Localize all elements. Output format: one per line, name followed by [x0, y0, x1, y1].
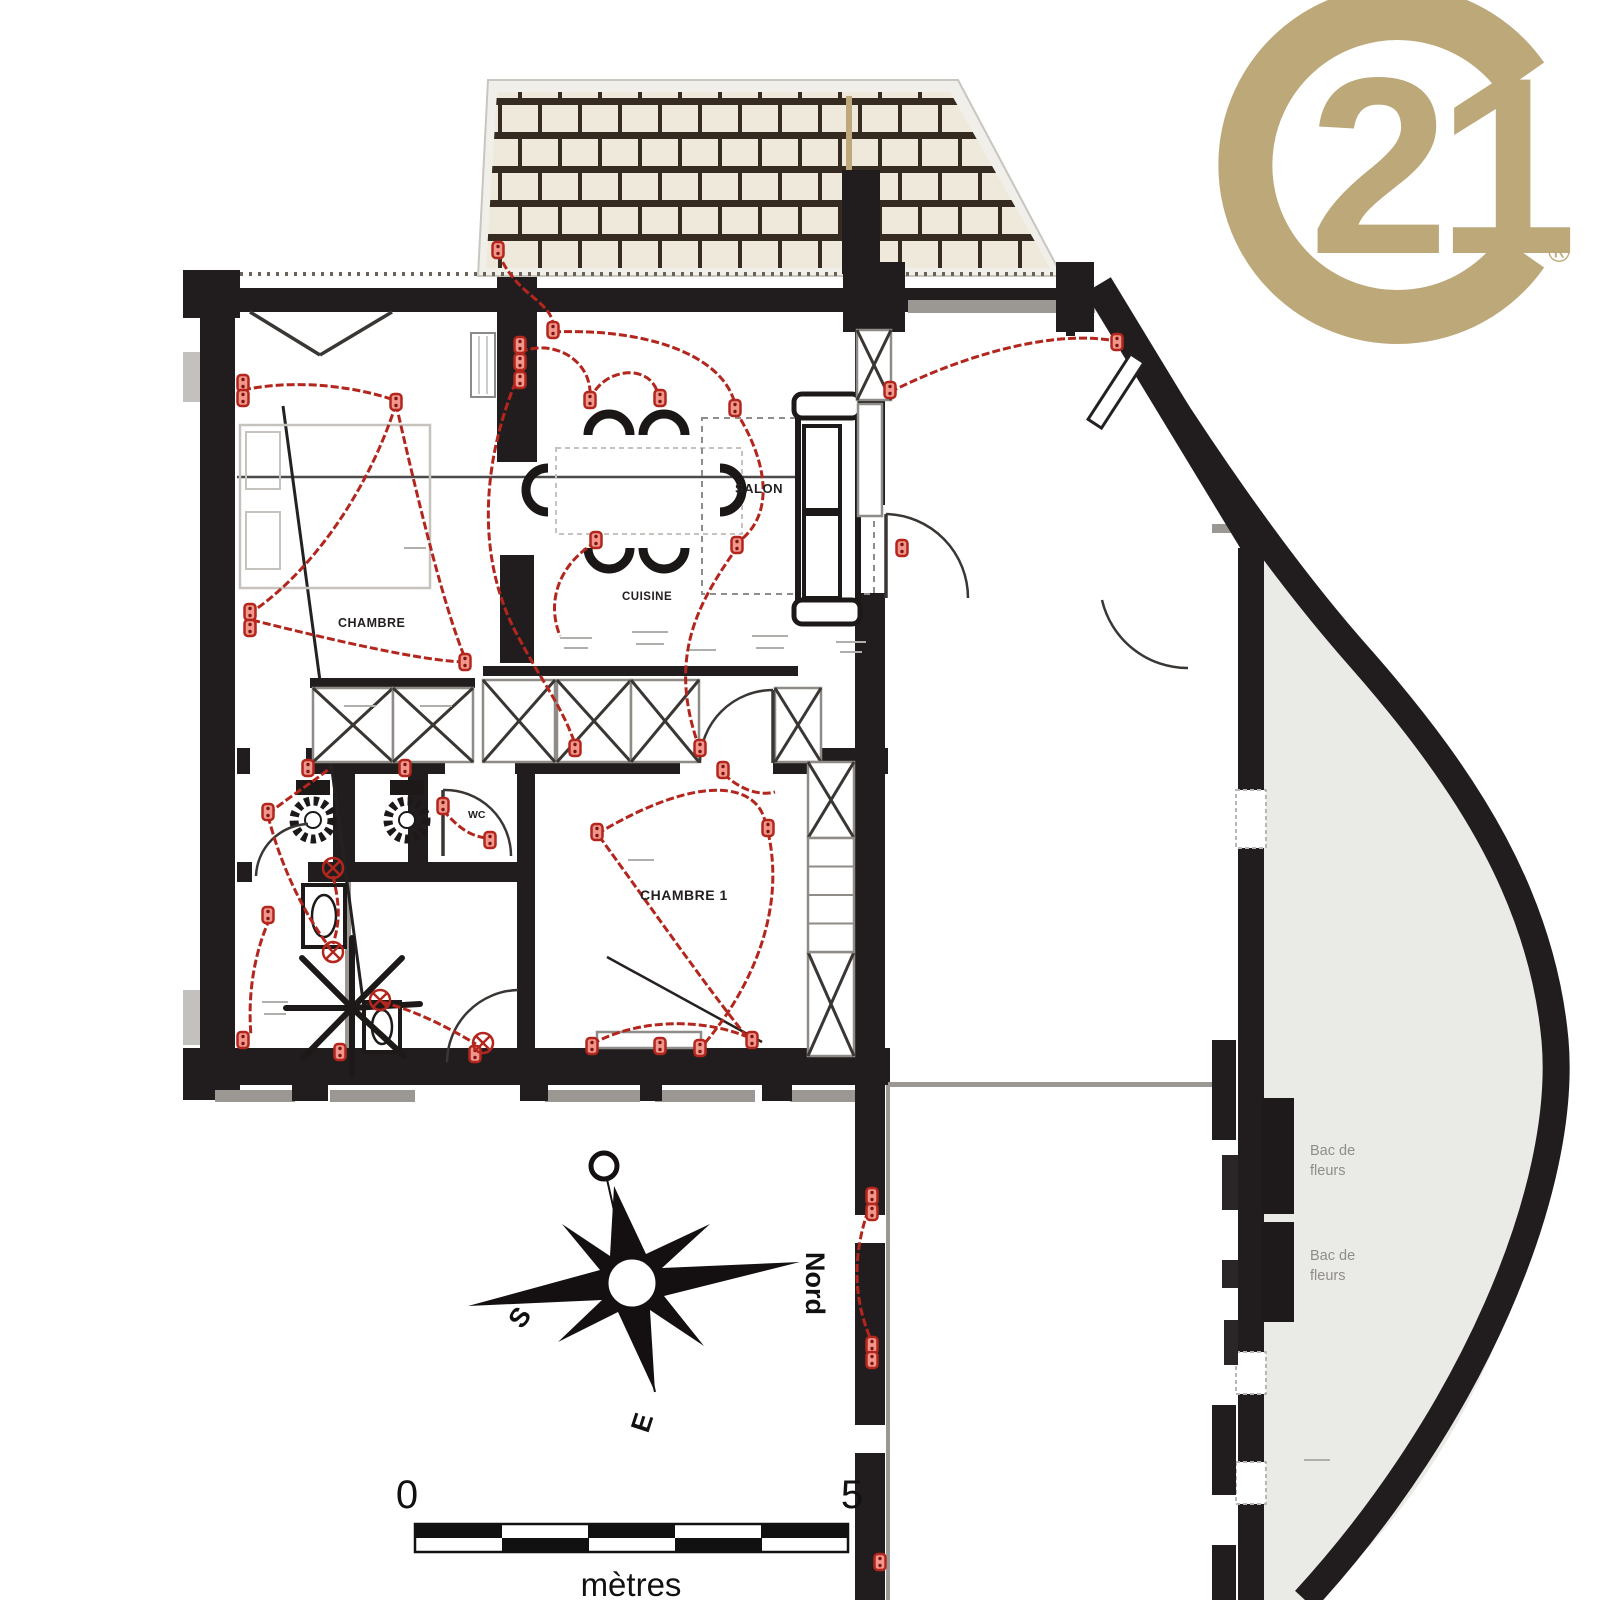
outlet-symbol	[587, 1038, 598, 1054]
outlet-symbol	[245, 620, 256, 636]
electrical-wire	[590, 373, 658, 400]
outlet-symbol	[515, 372, 526, 388]
outlet-symbol	[438, 798, 449, 814]
label-salon: SALON	[735, 481, 783, 496]
outlet-symbol	[460, 654, 471, 670]
outlet-symbol	[515, 354, 526, 370]
outlet-symbol	[515, 337, 526, 353]
electrical-wire	[243, 385, 394, 400]
electrical-wire	[890, 338, 1110, 392]
planter-2-line2: fleurs	[1310, 1268, 1345, 1284]
wardrobe-shelves	[808, 838, 854, 952]
compass-label-east: E	[625, 1409, 659, 1435]
outlet-symbol	[655, 390, 666, 406]
outlet-symbol	[485, 832, 496, 848]
outlet-symbol	[245, 604, 256, 620]
outlet-symbol	[493, 242, 504, 258]
compass-rose: Nord S E	[468, 1153, 830, 1436]
cabinet-unit	[557, 680, 631, 762]
roof-gold-flashing	[846, 96, 852, 176]
entry-diagonal-wall	[1098, 285, 1265, 560]
outlet-symbol	[655, 1038, 666, 1054]
chimney	[842, 170, 880, 274]
label-chambre1: CHAMBRE 1	[640, 887, 728, 903]
outlet-symbol	[238, 375, 249, 391]
compass-hub	[606, 1257, 658, 1309]
outlet-symbol	[867, 1337, 878, 1353]
scale-start: 0	[396, 1473, 418, 1517]
dining-chairs	[526, 414, 742, 569]
entry-door-leaf	[1088, 354, 1144, 428]
scale-unit: mètres	[581, 1566, 682, 1600]
dining-table	[556, 448, 742, 534]
outlet-symbol	[238, 1032, 249, 1048]
scale-bar: 0 5 mètres	[396, 1473, 863, 1600]
outlet-symbol	[238, 390, 249, 406]
cabinet-unit	[483, 680, 555, 762]
terrace-window-frames	[1212, 1040, 1238, 1600]
compass-label-south: S	[502, 1301, 537, 1333]
radiator	[471, 333, 495, 397]
electrical-wire	[599, 836, 748, 1038]
outlet-symbol	[263, 907, 274, 923]
sofa-side-shelf	[858, 404, 882, 516]
planter-box-2	[1262, 1222, 1294, 1322]
outlet-symbol	[695, 740, 706, 756]
cabinet-unit	[808, 762, 854, 838]
outlet-symbol	[391, 394, 402, 410]
century21-logo: 21 ®	[1245, 13, 1571, 317]
scale-end: 5	[841, 1473, 863, 1517]
terrace: Bac de fleurs Bac de fleurs	[1098, 285, 1556, 1600]
outlet-symbol	[335, 1044, 346, 1060]
compass-west-ring	[591, 1153, 617, 1179]
label-cuisine: CUISINE	[622, 591, 672, 603]
terrace-inner-wall	[1238, 548, 1264, 1600]
outlet-symbol	[303, 760, 314, 776]
outlet-symbol	[763, 820, 774, 836]
outlet-symbol	[730, 400, 741, 416]
outlet-symbol	[867, 1188, 878, 1204]
planter-1-line1: Bac de	[1310, 1143, 1355, 1159]
planter-2-line1: Bac de	[1310, 1248, 1355, 1264]
left-window-sill-2	[183, 990, 200, 1045]
outlet-symbol	[695, 1040, 706, 1056]
outlet-symbol	[548, 322, 559, 338]
outlet-symbol	[592, 824, 603, 840]
cabinet-unit	[313, 688, 393, 762]
left-wall	[200, 288, 235, 1085]
outlet-symbol	[718, 762, 729, 778]
outlet-symbol	[400, 760, 411, 776]
planter-box-1	[1262, 1098, 1294, 1214]
label-wc: WC	[468, 809, 486, 821]
floor-plan-page: Bac de fleurs Bac de fleurs	[0, 0, 1600, 1600]
electrical-wire	[252, 404, 396, 612]
outlet-symbol	[867, 1352, 878, 1368]
cabinet-unit	[631, 680, 699, 762]
bath-wall-vertical	[517, 774, 535, 1048]
compass-label-north: Nord	[800, 1252, 830, 1315]
left-window-sill-1	[183, 352, 200, 402]
bed	[240, 425, 430, 588]
registered-mark-icon: ®	[1548, 236, 1570, 269]
bottom-wall	[183, 1048, 890, 1085]
logo-number: 21	[1309, 26, 1571, 307]
outlet-symbol	[570, 740, 581, 756]
cabinet-unit	[775, 688, 821, 762]
sofa	[794, 394, 860, 624]
outlet-symbol	[885, 382, 896, 398]
electrical-wire	[597, 790, 766, 834]
outlet-symbol	[263, 804, 274, 820]
cabinet-unit	[393, 688, 473, 762]
outlet-symbol	[1112, 334, 1123, 350]
outlet-symbol	[867, 1204, 878, 1220]
cabinet-unit	[808, 952, 854, 1056]
roof	[240, 80, 1062, 276]
planter-1-line2: fleurs	[1310, 1163, 1345, 1179]
electrical-wire	[704, 832, 773, 1044]
bottom-window-sills	[215, 1085, 860, 1102]
outlet-symbol	[585, 392, 596, 408]
electrical-outlets-layer	[238, 242, 1123, 1570]
outlet-symbol	[591, 532, 602, 548]
label-chambre: CHAMBRE	[338, 616, 405, 630]
floor-plan-drawing: Bac de fleurs Bac de fleurs	[0, 0, 1600, 1600]
electrical-wire	[250, 918, 270, 1036]
outlet-symbol	[897, 540, 908, 556]
outlet-symbol	[732, 537, 743, 553]
outlet-symbol	[875, 1554, 886, 1570]
outlet-symbol	[747, 1032, 758, 1048]
